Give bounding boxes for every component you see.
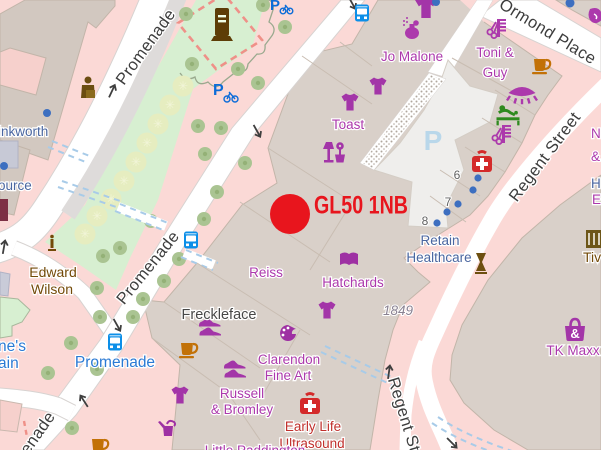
svg-text:Toni &: Toni & — [476, 45, 514, 60]
svg-text:Healthcare: Healthcare — [406, 250, 471, 265]
svg-text:ain: ain — [0, 355, 19, 372]
svg-text:P: P — [213, 82, 224, 99]
svg-text:& Bromley: & Bromley — [211, 402, 274, 417]
svg-text:P: P — [424, 125, 443, 156]
svg-text:Edward: Edward — [29, 264, 76, 280]
svg-text:Clarendon: Clarendon — [258, 352, 320, 367]
svg-text:inkworth: inkworth — [0, 124, 48, 139]
svg-text:H: H — [591, 176, 601, 191]
svg-text:Tiv: Tiv — [583, 249, 601, 265]
svg-text:Russell: Russell — [220, 386, 264, 401]
svg-text:N: N — [591, 126, 601, 141]
svg-text:8: 8 — [422, 214, 429, 228]
svg-text:&: & — [591, 149, 600, 164]
svg-text:7: 7 — [445, 195, 452, 209]
svg-text:Freckleface: Freckleface — [182, 307, 257, 323]
svg-text:TK Maxx: TK Maxx — [546, 343, 600, 358]
svg-text:GL50 1NB: GL50 1NB — [314, 192, 408, 220]
svg-text:E: E — [592, 192, 601, 207]
svg-text:P: P — [270, 0, 280, 14]
svg-text:Early Life: Early Life — [285, 419, 341, 434]
svg-text:Hatchards: Hatchards — [322, 275, 384, 290]
svg-text:1849: 1849 — [383, 303, 414, 318]
svg-text:Reiss: Reiss — [249, 265, 283, 280]
svg-text:Jo Malone: Jo Malone — [381, 49, 443, 64]
svg-text:Little Paddington: Little Paddington — [205, 443, 306, 450]
svg-text:Fine Art: Fine Art — [265, 368, 312, 383]
svg-text:ne's: ne's — [0, 338, 26, 355]
svg-text:ource: ource — [0, 178, 32, 193]
svg-text:Wilson: Wilson — [31, 281, 73, 297]
svg-text:Retain: Retain — [420, 233, 459, 248]
svg-text:6: 6 — [454, 168, 461, 182]
svg-text:Promenade: Promenade — [75, 354, 155, 371]
svg-text:Guy: Guy — [483, 65, 508, 80]
svg-text:Toast: Toast — [332, 117, 365, 132]
